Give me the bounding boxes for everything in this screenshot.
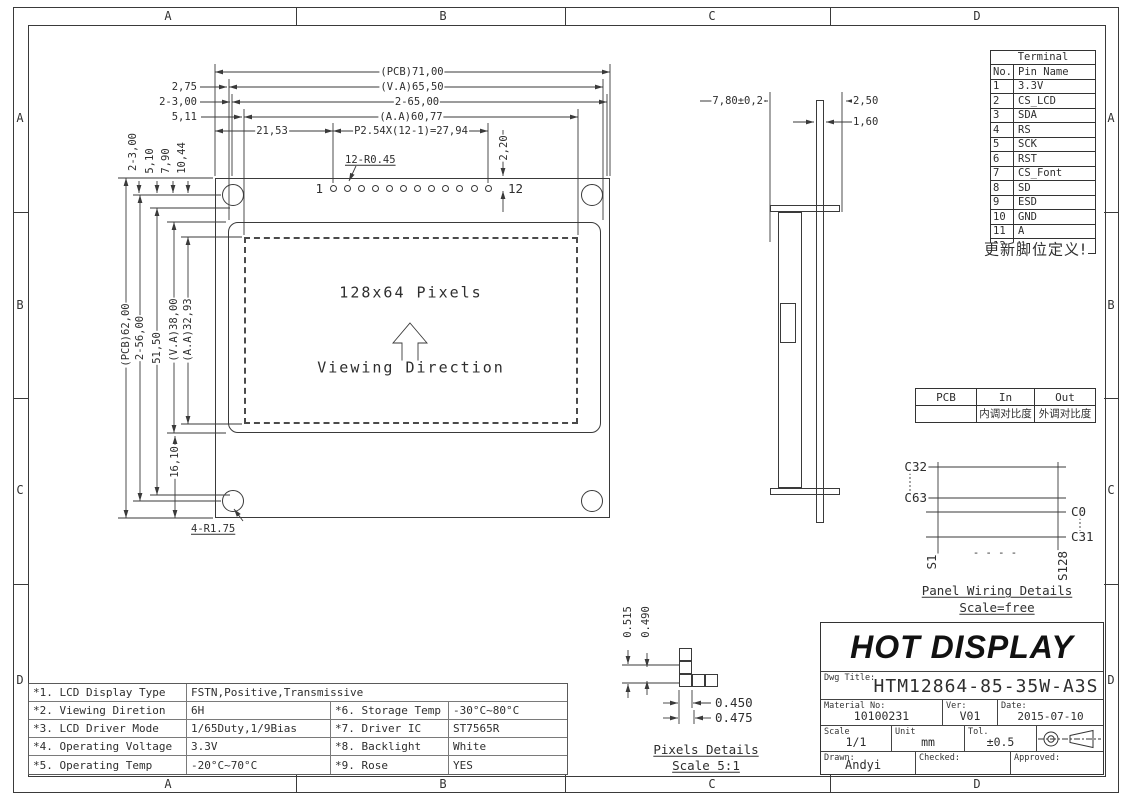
dim-5-11: 5,11: [171, 112, 198, 123]
terminal-row: 5SCK: [991, 137, 1095, 152]
pin-name: ESD: [1014, 197, 1095, 208]
pin-name: GND: [1014, 212, 1095, 223]
contrast-cell-internal: 内调对比度: [976, 406, 1034, 422]
dim-1-60: 1,60: [852, 117, 879, 128]
tol-value: ±0.5: [965, 735, 1036, 749]
pin-name: SCK: [1014, 139, 1095, 150]
pin-no: 11: [991, 225, 1014, 239]
wiring-scale: Scale=free: [958, 602, 1035, 615]
terminal-row: 9ESD: [991, 195, 1095, 210]
spec-value: 6H: [187, 702, 331, 720]
pixel-dim-0475: 0.475: [714, 712, 754, 725]
brand-text: HOT DISPLAY: [850, 629, 1074, 666]
engineering-drawing-page: A B C D A B C D A B C D A B C D: [0, 0, 1132, 801]
spec-key: *9. Rose: [331, 756, 449, 774]
wiring-label-c0: C0: [1070, 506, 1087, 519]
unit-value: mm: [892, 735, 964, 749]
dim-2-50: 2,50: [852, 96, 879, 107]
dim-51-50: 51,50: [152, 331, 163, 365]
scale-cell: Scale 1/1: [821, 726, 891, 751]
pin-definition-note: 更新脚位定义!: [983, 243, 1088, 258]
wiring-label-c32: C32: [903, 461, 928, 474]
dwg-title-row: Dwg Title: HTM12864-85-35W-A3S: [821, 671, 1103, 699]
terminal-row: 7CS_Font: [991, 166, 1095, 181]
terminal-row: 11A: [991, 224, 1095, 239]
dim-aa-width: (A.A)60,77: [378, 112, 443, 123]
unit-cell: Unit mm: [891, 726, 964, 751]
date-cell: Date: 2015-07-10: [997, 700, 1103, 725]
spec-value: 3.3V: [187, 738, 331, 756]
contrast-col-out: Out: [1034, 389, 1095, 405]
checked-cell: Checked:: [915, 752, 1010, 774]
contrast-table: PCB In Out 内调对比度 外调对比度: [915, 388, 1096, 423]
terminal-table: Terminal No. Pin Name 13.3V 2CS_LCD 3SDA…: [990, 50, 1096, 254]
spec-key: *6. Storage Temp: [331, 702, 449, 720]
dim-16-10: 16,10: [170, 445, 181, 479]
spec-value: -20°C~70°C: [187, 756, 331, 774]
dwg-title-value: HTM12864-85-35W-A3S: [821, 676, 1103, 697]
ver-cell: Ver: V01: [942, 700, 997, 725]
pin-no: 9: [991, 196, 1014, 210]
pin-name: SD: [1014, 183, 1095, 194]
terminal-row: 4RS: [991, 122, 1095, 137]
dim-offset-2-3: 2-3,00: [128, 132, 139, 172]
dim-va-width: (V.A)65,50: [379, 82, 444, 93]
terminal-title-text: Terminal: [1018, 52, 1069, 63]
viewing-direction-arrow-icon: [393, 323, 427, 363]
pixel-dim-0515: 0.515: [623, 605, 634, 639]
drawn-value: Andyi: [821, 758, 915, 772]
wiring-label-c31: C31: [1070, 531, 1095, 544]
pin-no: 5: [991, 138, 1014, 152]
viewing-direction-label: Viewing Direction: [316, 361, 506, 376]
terminal-row: 13.3V: [991, 79, 1095, 94]
dim-2-20: 2,20: [499, 134, 510, 161]
dim-2-65: 2-65,00: [394, 97, 440, 108]
tol-cell: Tol. ±0.5: [964, 726, 1036, 751]
dim-offset-7-90: 7,90: [161, 147, 172, 174]
terminal-header-row: No. Pin Name: [991, 64, 1095, 79]
projection-symbol-icon: [1037, 727, 1103, 751]
pin-no: 6: [991, 152, 1014, 166]
spec-key: *3. LCD Driver Mode: [29, 720, 187, 738]
wiring-title: Panel Wiring Details: [921, 585, 1074, 598]
spec-key: *2. Viewing Diretion: [29, 702, 187, 720]
spec-value: 1/65Duty,1/9Bias: [187, 720, 331, 738]
signatures-row: Drawn: Andyi Checked: Approved:: [821, 751, 1103, 774]
pin-name: RS: [1014, 125, 1095, 136]
pin-name: SDA: [1014, 110, 1095, 121]
title-block: HOT DISPLAY Dwg Title: HTM12864-85-35W-A…: [820, 622, 1104, 775]
dim-12-r045: 12-R0.45: [344, 155, 397, 166]
dim-2-3-top: 2-3,00: [158, 97, 198, 108]
wiring-ellipsis: - - - -: [972, 548, 1018, 559]
pin-name: A: [1014, 226, 1095, 237]
pin-no: 1: [991, 80, 1014, 94]
scale-value: 1/1: [821, 735, 891, 749]
contrast-col-in: In: [976, 389, 1034, 405]
dim-pcb-height: (PCB)62,00: [121, 302, 132, 367]
terminal-col-name: Pin Name: [1014, 67, 1095, 78]
pin-no: 8: [991, 181, 1014, 195]
dim-aa-height: (A.A)32,93: [183, 297, 194, 362]
pixel-detail-scale: Scale 5:1: [671, 760, 741, 773]
contrast-cell-external: 外调对比度: [1034, 406, 1095, 422]
dwg-title-cell: Dwg Title: HTM12864-85-35W-A3S: [821, 672, 1103, 699]
dim-2-56: 2-56,00: [135, 315, 146, 361]
lcd-pixels-label: 128x64 Pixels: [338, 286, 483, 301]
drawn-cell: Drawn: Andyi: [821, 752, 915, 774]
dim-pin-pitch: P2.54X(12-1)=27,94: [353, 126, 469, 137]
dim-offset-10-44: 10,44: [177, 141, 188, 175]
spec-value: -30°C~80°C: [449, 702, 567, 720]
dim-va-height: (V.A)38,00: [169, 297, 180, 362]
contrast-col-pcb: PCB: [916, 389, 976, 405]
pixel-detail-title: Pixels Details: [652, 744, 759, 757]
ver-value: V01: [943, 709, 997, 723]
date-value: 2015-07-10: [998, 710, 1103, 723]
pixel-dim-0490: 0.490: [641, 605, 652, 639]
dim-thickness: 7,80±0,2: [711, 96, 764, 107]
wiring-label-c63: C63: [903, 492, 928, 505]
dim-4-r175: 4-R1.75: [190, 524, 236, 535]
terminal-table-title: Terminal: [991, 51, 1095, 64]
spec-key: *1. LCD Display Type: [29, 684, 187, 702]
pin-name: 3.3V: [1014, 81, 1095, 92]
terminal-row: 6RST: [991, 151, 1095, 166]
dim-2-75: 2,75: [171, 82, 198, 93]
pin-no: 7: [991, 167, 1014, 181]
dim-offset-5-10: 5,10: [145, 147, 156, 174]
spec-table: *1. LCD Display Type FSTN,Positive,Trans…: [28, 683, 568, 775]
projection-cell: [1036, 726, 1103, 751]
dim-21-53: 21,53: [255, 126, 289, 137]
pin-no: 4: [991, 123, 1014, 137]
pin-name: CS_LCD: [1014, 96, 1095, 107]
material-value: 10100231: [821, 709, 942, 723]
pin-1-label: 1: [314, 183, 324, 196]
spec-value: FSTN,Positive,Transmissive: [187, 684, 567, 702]
terminal-row: 3SDA: [991, 108, 1095, 123]
pin-no: 10: [991, 210, 1014, 224]
spec-key: *4. Operating Voltage: [29, 738, 187, 756]
contrast-value-row: 内调对比度 外调对比度: [916, 405, 1095, 422]
approved-label: Approved:: [1014, 753, 1060, 763]
spec-key: *8. Backlight: [331, 738, 449, 756]
pin-name: RST: [1014, 154, 1095, 165]
spec-value: White: [449, 738, 567, 756]
spec-value: ST7565R: [449, 720, 567, 738]
wiring-label-s1: S1: [926, 553, 939, 570]
pixel-dim-0450: 0.450: [714, 697, 754, 710]
material-row: Material No: 10100231 Ver: V01 Date: 201…: [821, 699, 1103, 725]
contrast-cell-empty: [916, 406, 976, 422]
approved-cell: Approved:: [1010, 752, 1103, 774]
scale-row: Scale 1/1 Unit mm Tol. ±0.5: [821, 725, 1103, 751]
pin-no: 3: [991, 109, 1014, 123]
company-brand: HOT DISPLAY: [821, 623, 1103, 671]
pin-name: CS_Font: [1014, 168, 1095, 179]
pin-12-label: 12: [507, 183, 524, 196]
dim-pcb-width: (PCB)71,00: [379, 67, 444, 78]
pin-no: 2: [991, 94, 1014, 108]
contrast-header-row: PCB In Out: [916, 389, 1095, 405]
terminal-col-no: No.: [991, 65, 1014, 79]
spec-value: YES: [449, 756, 567, 774]
terminal-row: 8SD: [991, 180, 1095, 195]
terminal-row: 2CS_LCD: [991, 93, 1095, 108]
checked-label: Checked:: [919, 753, 960, 763]
spec-key: *7. Driver IC: [331, 720, 449, 738]
spec-key: *5. Operating Temp: [29, 756, 187, 774]
terminal-row: 10GND: [991, 209, 1095, 224]
wiring-label-s128: S128: [1057, 550, 1070, 582]
material-cell: Material No: 10100231: [821, 700, 942, 725]
